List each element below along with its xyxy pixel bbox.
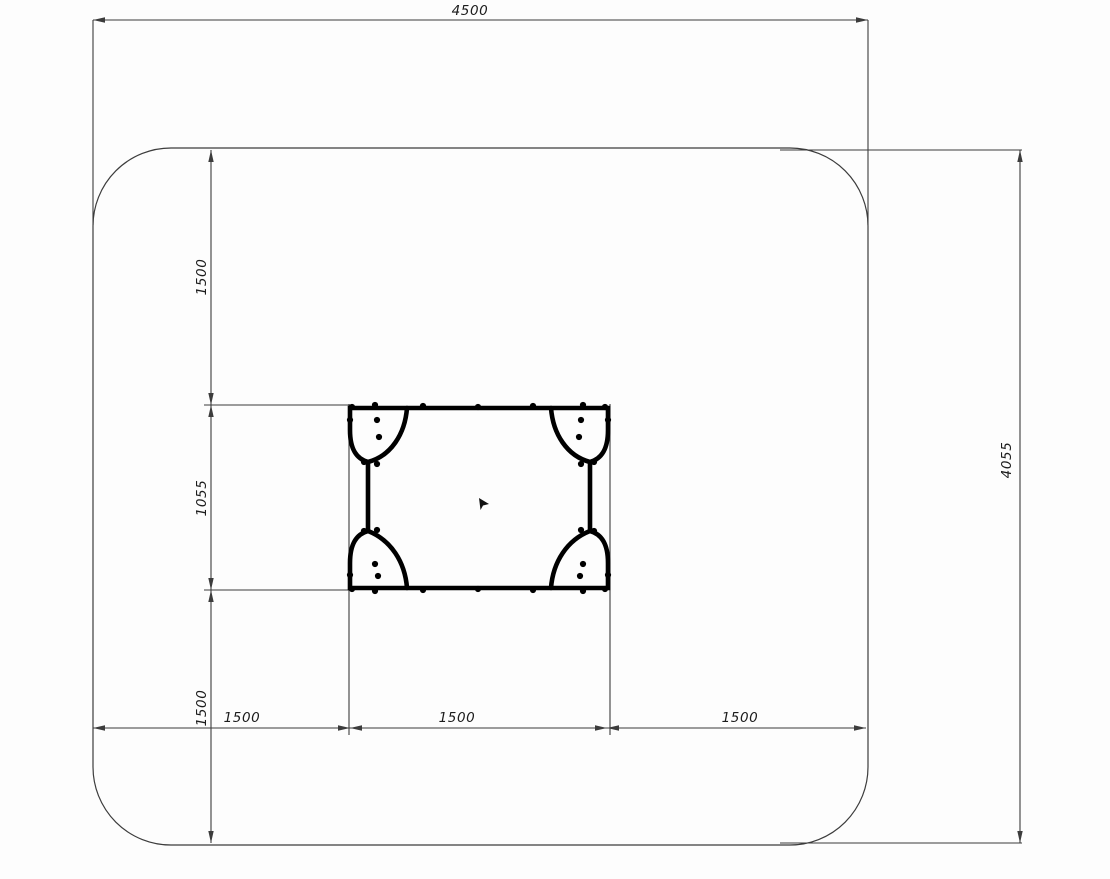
dim-label-left-2: 1055 — [194, 480, 210, 517]
bolt-dot — [578, 527, 584, 533]
bolt-dot — [475, 586, 481, 592]
drawing-canvas: 4500 4055 1500 1055 1500 1500 1500 1500 — [0, 0, 1110, 879]
dimension-labels: 4500 4055 1500 1055 1500 1500 1500 1500 — [194, 3, 1015, 726]
bolt-dot — [349, 586, 355, 592]
bolt-dot — [420, 587, 426, 593]
bolt-dot — [376, 434, 382, 440]
bolt-dot — [602, 586, 608, 592]
bolt-dot — [475, 404, 481, 410]
arrowhead — [856, 17, 868, 22]
corner-brace-top-left — [368, 408, 407, 462]
center-mark — [479, 498, 489, 510]
arrowhead — [93, 725, 105, 730]
bolt-dot — [347, 417, 353, 423]
bolt-dot — [374, 417, 380, 423]
bolt-dot — [605, 572, 611, 578]
arrowhead — [338, 725, 350, 730]
bolt-dot — [580, 561, 586, 567]
bolt-dot — [591, 459, 597, 465]
bolt-dot — [591, 528, 597, 534]
bolt-dot — [580, 402, 586, 408]
dim-label-right: 4055 — [999, 442, 1015, 479]
bolt-dot — [576, 434, 582, 440]
bolt-dot — [602, 404, 608, 410]
arrowhead — [208, 578, 213, 590]
bolt-dot — [578, 461, 584, 467]
bolt-dot — [530, 403, 536, 409]
bolt-dot — [420, 403, 426, 409]
dim-label-bottom-1: 1500 — [224, 710, 261, 726]
bolt-dot — [605, 417, 611, 423]
arrowhead — [208, 393, 213, 405]
arrowhead — [208, 590, 213, 602]
bolt-dot — [530, 587, 536, 593]
arrowhead — [595, 725, 607, 730]
bolt-dot — [374, 527, 380, 533]
dim-label-bottom-2: 1500 — [439, 710, 476, 726]
arrowhead — [208, 831, 213, 843]
technical-drawing-svg: 4500 4055 1500 1055 1500 1500 1500 1500 — [0, 0, 1110, 879]
arrowhead — [607, 725, 619, 730]
dim-label-top: 4500 — [452, 3, 489, 19]
bolt-dot — [577, 573, 583, 579]
arrowhead — [1017, 150, 1022, 162]
bolt-dot — [372, 561, 378, 567]
arrowhead — [93, 17, 105, 22]
bolt-dot — [347, 572, 353, 578]
bolt-dot — [372, 402, 378, 408]
arrowhead — [1017, 831, 1022, 843]
bolt-dot — [372, 588, 378, 594]
bolt-dot — [361, 528, 367, 534]
arrowhead — [350, 725, 362, 730]
corner-brace-bottom-right — [551, 531, 590, 588]
bolt-dot — [349, 404, 355, 410]
corner-brace-top-right — [551, 408, 590, 462]
bolt-dot — [361, 459, 367, 465]
arrowhead — [208, 405, 213, 417]
dim-label-left-1: 1500 — [194, 259, 210, 296]
bolt-dot — [375, 573, 381, 579]
arrowhead — [208, 150, 213, 162]
arrowhead — [854, 725, 866, 730]
dim-label-left-3: 1500 — [194, 690, 210, 727]
bolt-dot — [374, 461, 380, 467]
bolt-dot — [580, 588, 586, 594]
corner-brace-bottom-left — [368, 531, 407, 588]
dim-label-bottom-3: 1500 — [722, 710, 759, 726]
bolt-dot — [578, 417, 584, 423]
